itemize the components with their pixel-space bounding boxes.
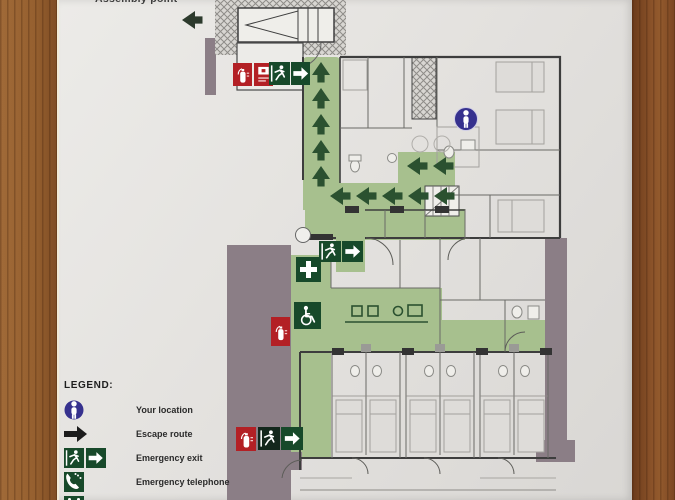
your-location-icon — [455, 108, 478, 131]
your-location-icon — [64, 400, 112, 420]
first-aid-icon — [296, 257, 321, 282]
legend-row-emergency-telephone: Emergency telephone — [64, 472, 224, 492]
legend-row-emergency-exit: Emergency exit — [64, 448, 224, 468]
legend-row-your-location: Your location — [64, 400, 224, 420]
emergency-exit-icon — [64, 448, 112, 468]
escape-route-icon — [64, 426, 112, 442]
lower-corridor-faint — [300, 478, 556, 490]
legend-label: Your location — [136, 405, 193, 415]
legend-row-assembly-point: Assembly point — [64, 496, 224, 500]
assembly-point-arrow — [182, 11, 203, 29]
legend-label: Escape route — [136, 429, 193, 439]
staircase-top — [238, 8, 334, 42]
legend-label: Emergency exit — [136, 453, 203, 463]
wheelchair-refuge-icon — [294, 302, 321, 329]
legend-heading: LEGEND: — [64, 380, 224, 391]
legend-row-escape-route: Escape route — [64, 424, 224, 444]
evacuation-plan-photo: Assembly point — [0, 0, 675, 500]
legend-label: Emergency telephone — [136, 477, 230, 487]
assembly-point-icon — [64, 496, 112, 500]
emergency-exit-sign-middle — [319, 241, 363, 262]
emergency-telephone-icon — [64, 472, 112, 492]
legend: LEGEND: Your location Escape route — [64, 380, 224, 500]
emergency-exit-sign-top — [269, 62, 310, 85]
